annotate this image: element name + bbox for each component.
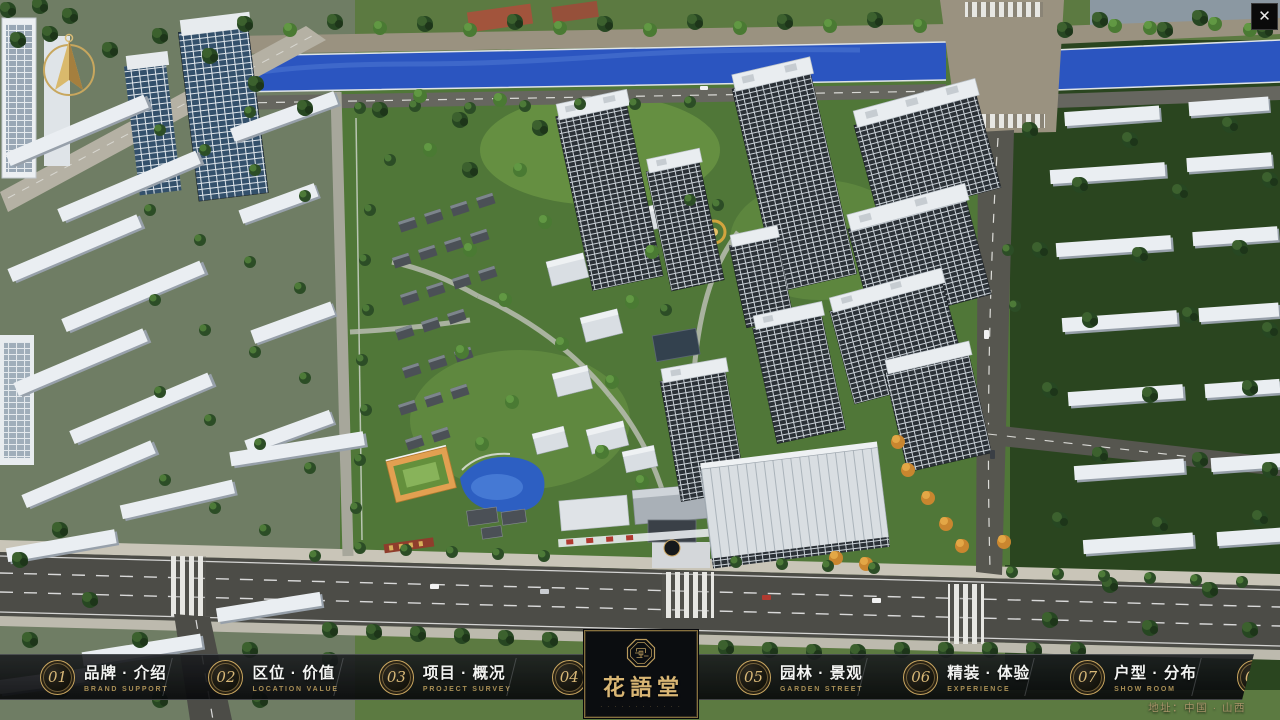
nav-label-en: LOCATION VALUE [252, 686, 338, 693]
nav-item-unit-layout[interactable]: 07 户型 · 分布 SHOW ROOM [1030, 655, 1197, 699]
nav-item-garden-landscape[interactable]: 05 园林 · 景观 GARDEN STREET [696, 655, 863, 699]
nav-label-en: GARDEN STREET [780, 686, 863, 693]
project-logo-panel: 花語堂 · · · · · · · · · · · · [584, 630, 698, 718]
site-plan-3d-view[interactable] [0, 0, 1280, 720]
close-button[interactable]: ✕ [1251, 3, 1278, 30]
item-number-badge: 05 [736, 660, 771, 695]
project-logo-text: 花語堂 [598, 670, 684, 702]
item-number: 03 [387, 668, 406, 686]
nav-label-en: BRAND SUPPORT [84, 686, 168, 693]
nav-item-location-value[interactable]: 02 区位 · 价值 LOCATION VALUE [168, 655, 338, 699]
item-number-badge: 06 [903, 660, 938, 695]
nav-item-interior-experience[interactable]: 06 精装 · 体验 EXPERIENCE [863, 655, 1030, 699]
nav-group-left: 01 品牌 · 介绍 BRAND SUPPORT 02 区位 · 价值 LOCA… [0, 654, 584, 700]
compass-north-indicator [38, 28, 100, 102]
nav-item-brand-intro[interactable]: 01 品牌 · 介绍 BRAND SUPPORT [0, 655, 168, 699]
bottom-nav-bar: 01 品牌 · 介绍 BRAND SUPPORT 02 区位 · 价值 LOCA… [0, 654, 1280, 700]
item-number: 06 [911, 668, 930, 686]
item-number-badge: 01 [40, 660, 75, 695]
nav-group-right: 05 园林 · 景观 GARDEN STREET 06 精装 · 体验 EXPE… [696, 654, 1254, 700]
nav-label-zh: 区位 · 价值 [252, 661, 338, 683]
nav-label-zh: 户型 · 分布 [1114, 661, 1197, 683]
item-number: 04 [560, 668, 579, 686]
nav-item-project-survey[interactable]: 03 项目 · 概况 PROJECT SURVEY [339, 655, 512, 699]
project-logo-subtitle: · · · · · · · · · · · · [600, 704, 681, 710]
nav-label-zh: 项目 · 概况 [423, 661, 512, 683]
compass-icon [38, 28, 100, 102]
item-number-badge: 08 [1237, 660, 1272, 695]
nav-label-zh: 园林 · 景观 [780, 661, 863, 683]
nav-label-en: PROJECT SURVEY [423, 686, 512, 693]
item-number: 08 [1245, 668, 1264, 686]
item-number-badge: 07 [1070, 660, 1105, 695]
nav-label-zh: 精装 · 体验 [947, 661, 1030, 683]
item-number-badge: 02 [208, 660, 243, 695]
item-number: 01 [48, 668, 67, 686]
project-address: 地址：中国 · 山西 [1148, 700, 1246, 715]
nav-item-room-view[interactable]: 08 一房 · 一景 COMMUNITY [1197, 655, 1280, 699]
item-number: 05 [744, 668, 763, 686]
item-number: 07 [1078, 668, 1097, 686]
item-number-badge: 03 [379, 660, 414, 695]
nav-label-en: EXPERIENCE [947, 686, 1030, 693]
seal-emblem-icon [626, 638, 656, 668]
presentation-screen: ✕ 01 品牌 · 介绍 BRAND SUPPORT 02 区位 · 价值 LO… [0, 0, 1280, 720]
nav-label-en: SHOW ROOM [1114, 686, 1197, 693]
item-number: 02 [216, 668, 235, 686]
item-number-badge: 04 [552, 660, 587, 695]
nav-label-zh: 品牌 · 介绍 [84, 661, 168, 683]
